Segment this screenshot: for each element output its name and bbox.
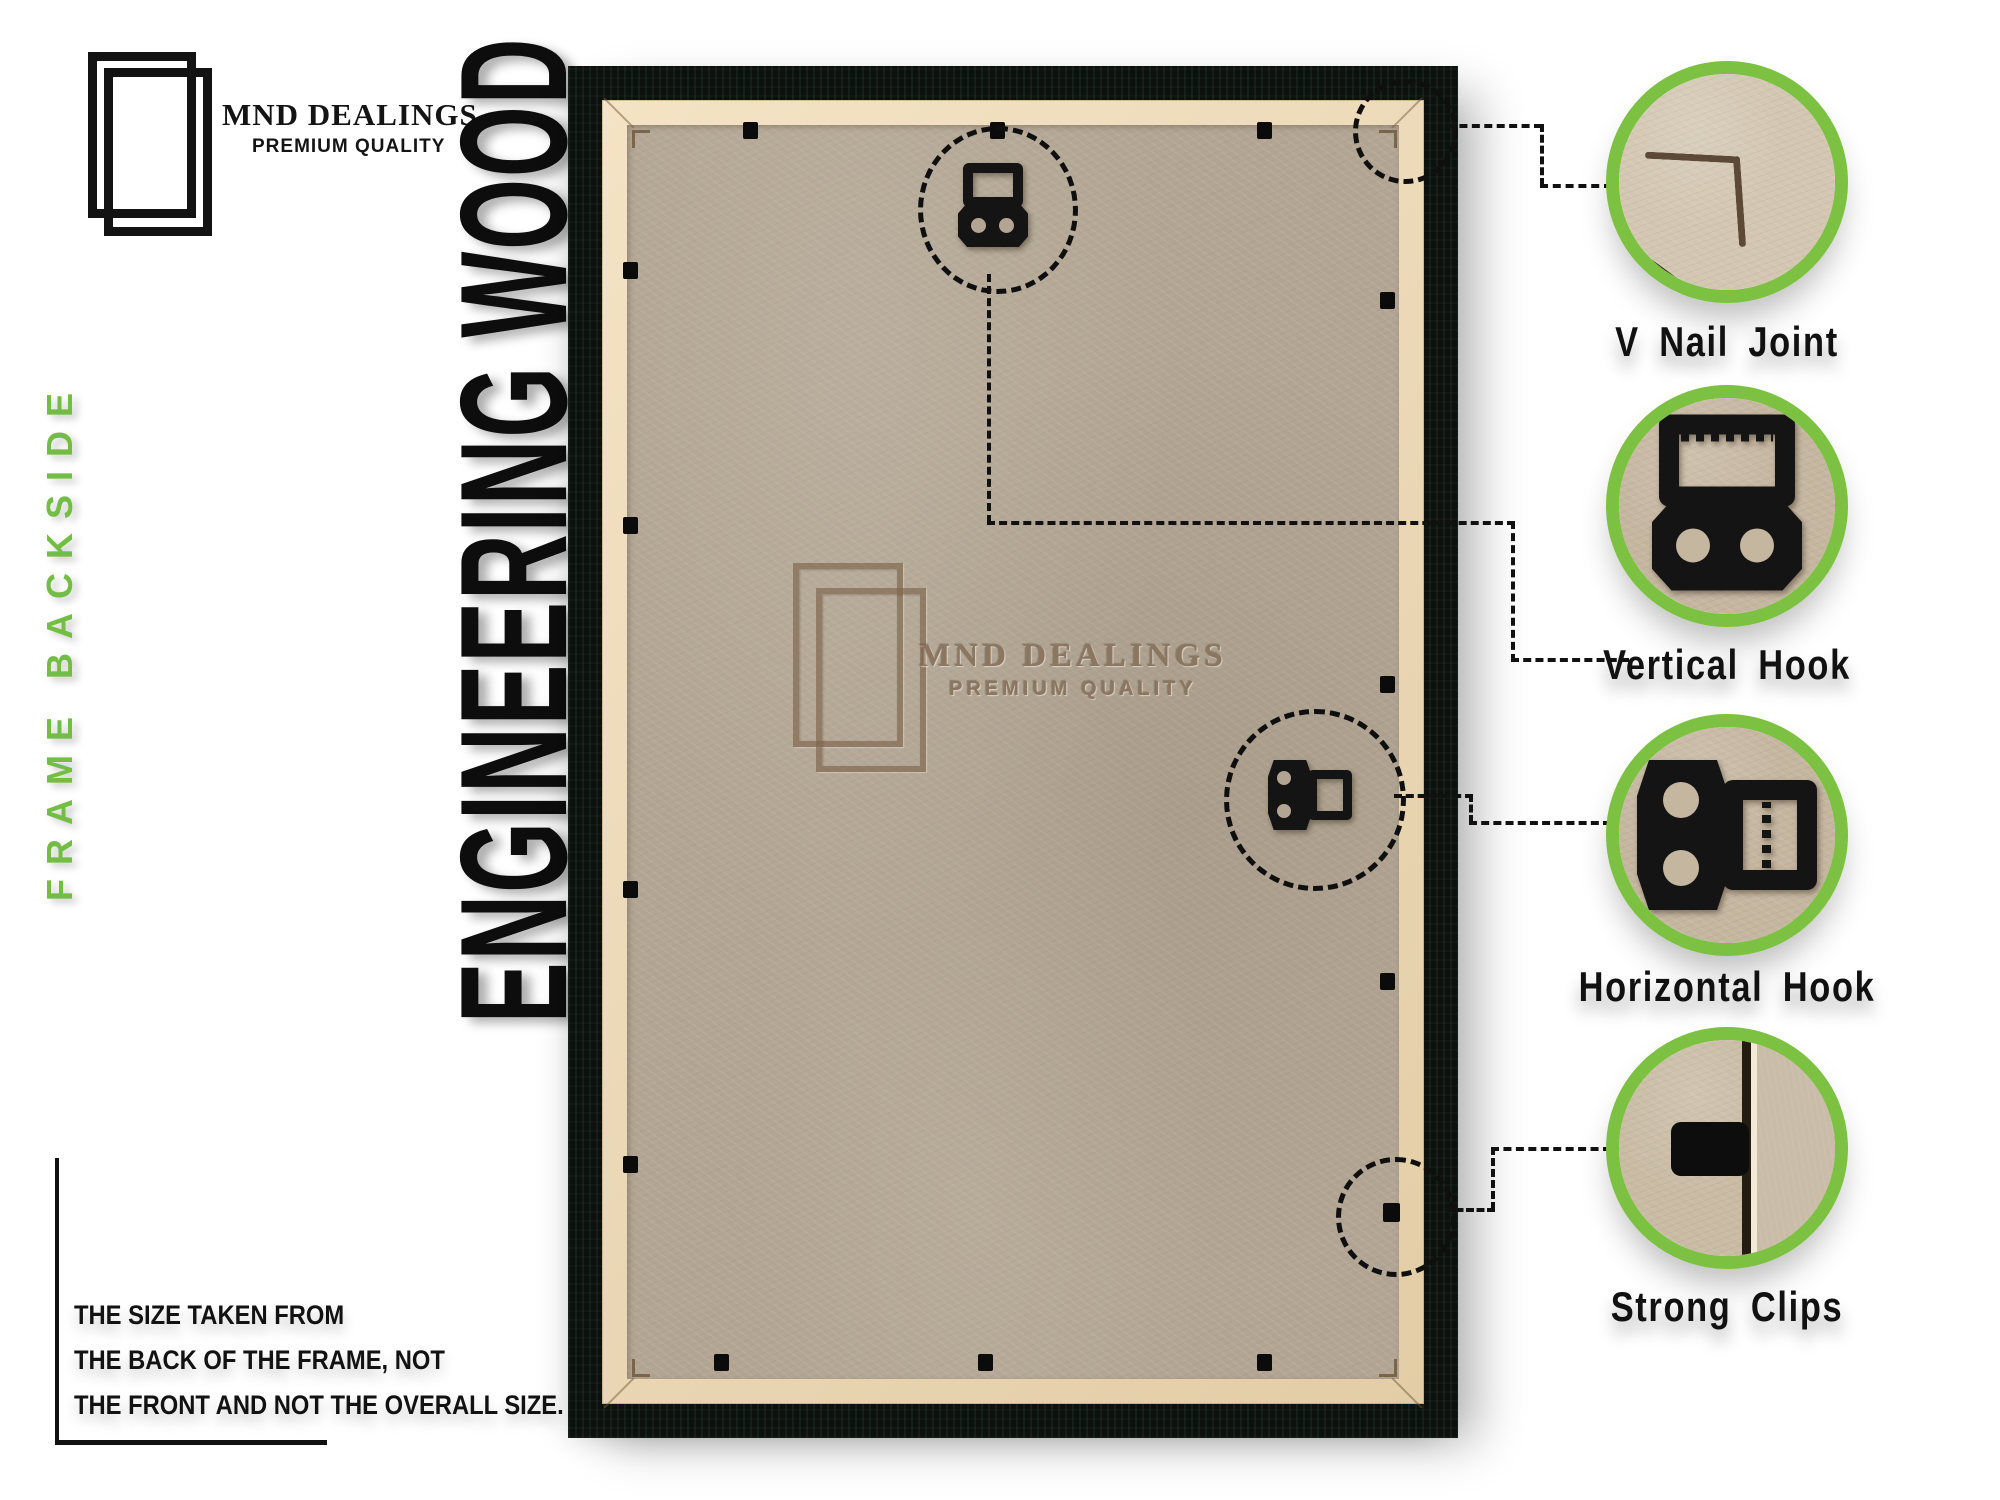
connector-v-nail <box>1540 184 1612 188</box>
connector-vertical-hook <box>987 274 991 523</box>
vertical-hook-callout <box>1606 385 1848 627</box>
size-note-line-1: THE SIZE TAKEN FROM <box>74 1300 602 1331</box>
backboard-clip <box>1257 1354 1272 1371</box>
vertical-hook-icon <box>1652 414 1802 590</box>
frame-edge <box>1757 1040 1835 1256</box>
frame-logo-icon <box>104 68 212 236</box>
v-nail-corner-mark <box>1379 1359 1397 1377</box>
v-nail-joint-label: V Nail Joint <box>1571 318 1883 366</box>
connector-strong-clips <box>1445 1208 1495 1212</box>
strong-clips-callout <box>1606 1027 1848 1269</box>
v-nail-marker-circle <box>1353 79 1458 184</box>
backboard-clip <box>714 1354 729 1371</box>
connector-v-nail <box>1447 124 1542 128</box>
connector-strong-clips <box>1491 1147 1611 1151</box>
connector-vertical-hook <box>1511 521 1515 662</box>
note-rule-vertical <box>55 1158 59 1442</box>
watermark-name: MND DEALINGS <box>908 638 1238 675</box>
strong-clips-label: Strong Clips <box>1571 1283 1883 1331</box>
frame-backside-photo: MND DEALINGS PREMIUM QUALITY <box>568 66 1458 1438</box>
vertical-hook-marker-circle <box>918 126 1078 294</box>
joint-line <box>1645 151 1738 163</box>
connector-v-nail <box>1540 124 1544 186</box>
backboard-clip <box>1380 973 1395 990</box>
horizontal-hook-callout <box>1606 714 1848 956</box>
v-nail-joint-callout <box>1606 61 1848 303</box>
backboard-clip <box>623 262 638 279</box>
page: MND DEALINGS PREMIUM QUALITY FRAME BACKS… <box>0 0 2000 1500</box>
strong-clip-marker-circle <box>1336 1157 1456 1277</box>
backboard-clip <box>623 1156 638 1173</box>
backboard-clip <box>1380 292 1395 309</box>
connector-vertical-hook <box>987 521 1515 525</box>
strong-clip-icon <box>1671 1122 1749 1176</box>
v-nail-corner-mark <box>632 130 650 148</box>
horizontal-hook-marker-circle <box>1224 709 1406 891</box>
backboard-clip <box>1380 676 1395 693</box>
size-note-line-3: THE FRONT AND NOT THE OVERALL SIZE. <box>74 1390 602 1421</box>
backboard-clip <box>978 1354 993 1371</box>
backboard-clip <box>623 881 638 898</box>
watermark-tagline: PREMIUM QUALITY <box>908 678 1238 701</box>
horizontal-hook-icon <box>1637 760 1817 910</box>
backboard-clip <box>1257 122 1272 139</box>
size-note-line-2: THE BACK OF THE FRAME, NOT <box>74 1345 602 1376</box>
v-nail-corner-mark <box>632 1359 650 1377</box>
horizontal-hook-label: Horizontal Hook <box>1571 963 1883 1011</box>
vertical-hook-label: Vertical Hook <box>1571 641 1883 689</box>
engineering-wood-label: ENGINEERING WOOD <box>427 212 557 1352</box>
connector-horizontal-hook <box>1469 794 1473 823</box>
connector-horizontal-hook <box>1469 821 1611 825</box>
brand-tagline: PREMIUM QUALITY <box>252 136 445 158</box>
frame-backside-label: FRAME BACKSIDE <box>39 310 85 970</box>
corner-shadow <box>1615 225 1706 298</box>
backboard-clip <box>743 122 758 139</box>
note-rule-horizontal <box>55 1440 327 1445</box>
connector-horizontal-hook <box>1394 794 1473 798</box>
connector-strong-clips <box>1491 1147 1495 1210</box>
joint-line <box>1732 156 1745 247</box>
backboard-clip <box>623 517 638 534</box>
